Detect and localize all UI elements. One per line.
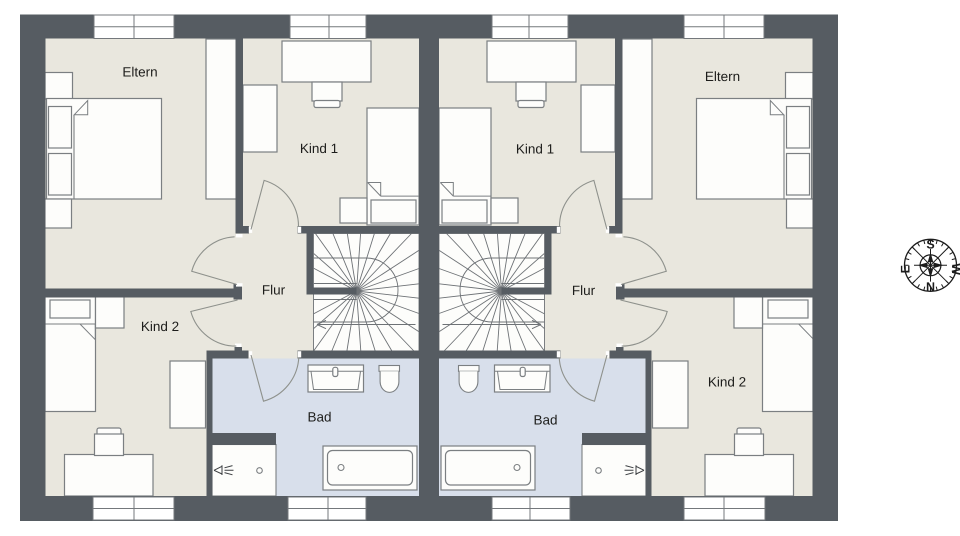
svg-text:E: E bbox=[899, 265, 913, 273]
svg-text:W: W bbox=[949, 263, 960, 275]
svg-text:Flur: Flur bbox=[572, 283, 596, 298]
svg-text:Bad: Bad bbox=[307, 410, 331, 425]
svg-text:Bad: Bad bbox=[533, 413, 557, 428]
svg-text:Kind 2: Kind 2 bbox=[708, 375, 746, 390]
svg-text:S: S bbox=[926, 238, 934, 252]
svg-text:Eltern: Eltern bbox=[705, 69, 740, 84]
svg-text:Kind 1: Kind 1 bbox=[300, 141, 338, 156]
svg-text:Flur: Flur bbox=[262, 283, 286, 298]
svg-text:Kind 1: Kind 1 bbox=[516, 142, 554, 157]
svg-text:Eltern: Eltern bbox=[122, 65, 157, 80]
svg-text:Kind 2: Kind 2 bbox=[141, 319, 179, 334]
svg-text:N: N bbox=[926, 280, 935, 294]
